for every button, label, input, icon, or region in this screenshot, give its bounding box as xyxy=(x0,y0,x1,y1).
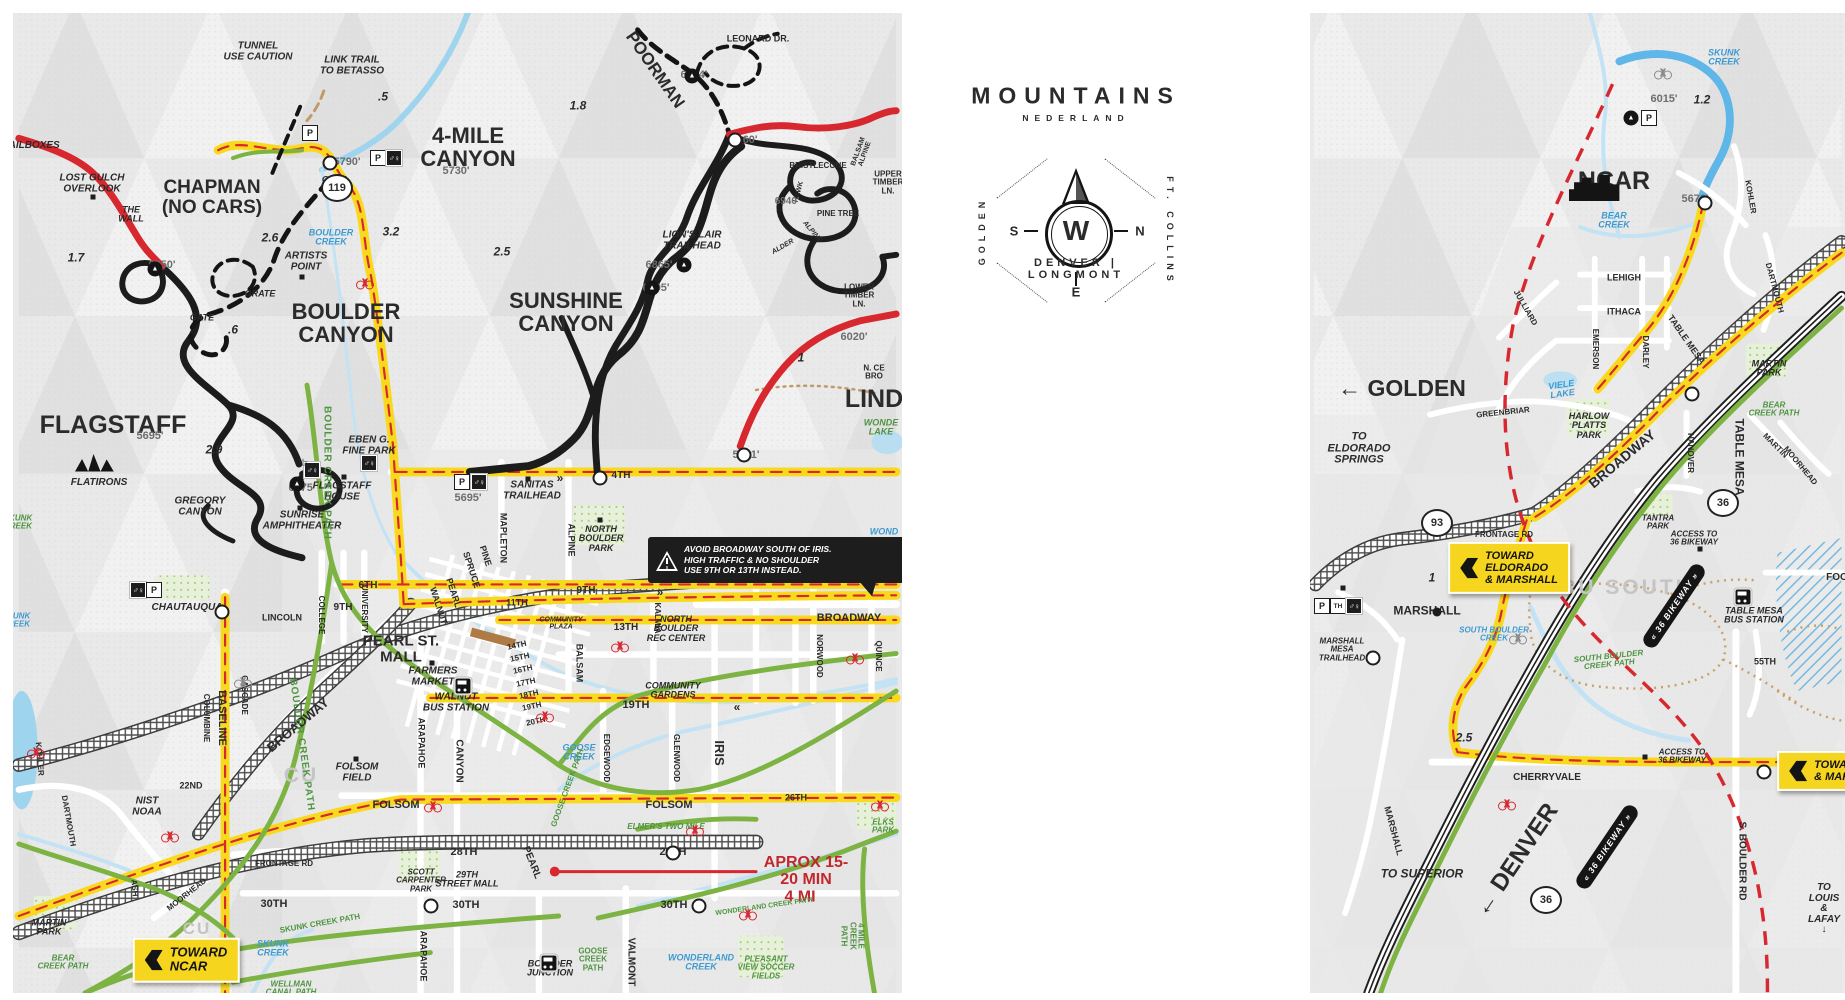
compass-cities: DENVER | LONGMONT xyxy=(988,257,1164,281)
compass-tick xyxy=(1114,230,1128,232)
compass-golden: GOLDEN xyxy=(977,197,987,266)
left-map-artwork: {"":""} xyxy=(13,13,902,993)
compass-north: N xyxy=(1135,224,1144,239)
south-boulder-map-panel[interactable]: SKUNK CREEK6015'1.2NCAR5676'BEAR CREEKKO… xyxy=(1310,13,1845,993)
compass-dash xyxy=(1104,158,1155,198)
compass-ft-collins: FT. COLLINS xyxy=(1165,176,1175,286)
boulder-city-map-panel[interactable]: {"":""} xyxy=(13,13,902,993)
map-subtitle: NEDERLAND xyxy=(1022,113,1129,123)
warning-line2: HIGH TRAFFIC & NO SHOULDER xyxy=(684,555,819,565)
broadway-warning-callout: AVOID BROADWAY SOUTH OF IRIS. HIGH TRAFF… xyxy=(648,537,902,583)
compass-dash xyxy=(996,158,1047,198)
compass-west: W xyxy=(1045,200,1107,262)
warning-line3: USE 9TH OR 13TH INSTEAD. xyxy=(684,565,801,575)
center-column: MOUNTAINS NEDERLAND W S N E GOLDEN FT. C… xyxy=(902,0,1310,1000)
right-map-artwork xyxy=(1310,13,1845,993)
compass-block: MOUNTAINS NEDERLAND W S N E GOLDEN FT. C… xyxy=(902,60,1252,290)
compass-tick xyxy=(1024,230,1038,232)
warning-triangle-icon xyxy=(656,551,678,571)
map-title: MOUNTAINS xyxy=(971,83,1181,110)
compass-east: E xyxy=(1072,285,1081,300)
warning-line1: AVOID BROADWAY SOUTH OF IRIS. xyxy=(684,544,832,554)
map-sheet: { "colors":{"recommended_yellow":"#f8d91… xyxy=(0,0,1845,1000)
compass-south: S xyxy=(1010,224,1019,239)
